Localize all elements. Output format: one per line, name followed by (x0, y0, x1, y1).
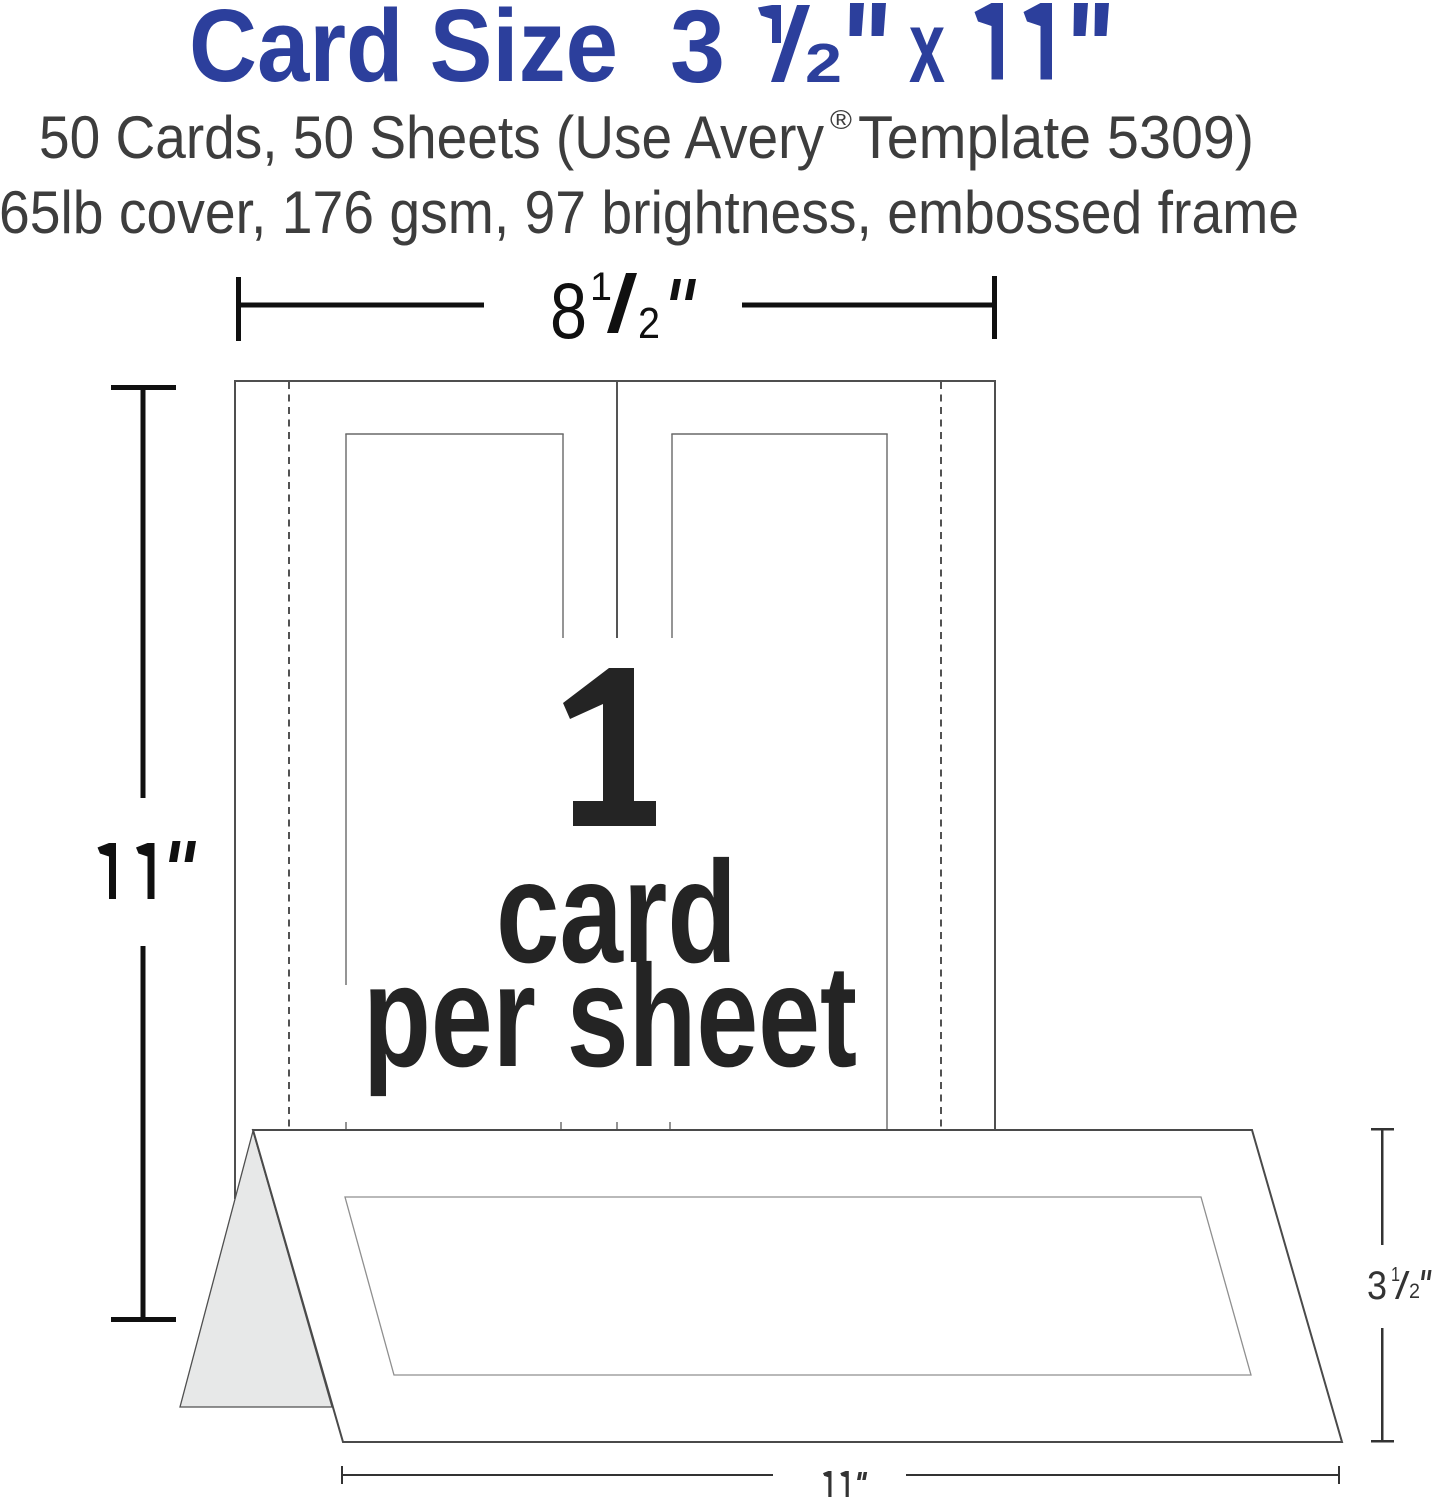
svg-text:2: 2 (1409, 1280, 1420, 1303)
svg-text:2: 2 (805, 32, 842, 94)
svg-text:65lb cover, 176 gsm, 97 bright: 65lb cover, 176 gsm, 97 brightness, embo… (0, 179, 1299, 246)
svg-text:2: 2 (638, 299, 660, 348)
svg-text:50 Cards, 50 Sheets (Use Avery: 50 Cards, 50 Sheets (Use Avery (39, 104, 824, 171)
svg-text:Card Size: Card Size (189, 0, 618, 103)
svg-text:3: 3 (670, 0, 725, 104)
svg-text:Template 5309): Template 5309) (858, 104, 1254, 171)
svg-text:x: x (909, 0, 945, 104)
svg-text:1: 1 (1391, 1264, 1400, 1286)
svg-text:®: ® (830, 105, 852, 135)
svg-text:per sheet: per sheet (363, 935, 857, 1097)
svg-text:1: 1 (590, 265, 612, 309)
svg-text:8: 8 (550, 266, 587, 355)
svg-text:3: 3 (1367, 1264, 1387, 1308)
